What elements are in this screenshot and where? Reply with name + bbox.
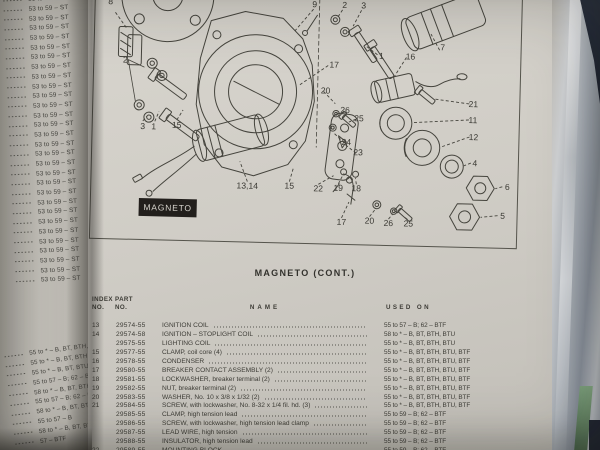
used-on-text: 53 to 59 – ST [36,178,76,187]
dot-leader [226,353,367,355]
dot-leader [6,76,26,79]
diagram-callout-number: 13,14 [236,180,258,191]
plastic-sleeve-edge [552,0,600,450]
diagram-callout-number: 26 [383,218,393,228]
diagram-callout-number: 11 [468,115,477,125]
diagram-callout-number: 25 [403,218,413,228]
dot-leader [7,96,27,99]
cell-name: LIGHTING COIL [158,340,372,347]
used-on-text: 53 to 59 – ST [29,23,69,32]
dot-leader [208,362,367,364]
dot-leader [14,441,34,445]
used-on-text: 53 to 59 – ST [31,62,71,71]
used-on-text: 53 to 59 – ST [35,149,75,158]
diagram-callout-number: 3 [140,121,145,131]
part-name-text: LIGHTING COIL [162,340,210,347]
cell-part-no: 29588-55 [108,438,158,445]
dot-leader [14,260,34,263]
dot-leader [12,421,32,425]
cell-used-on: 55 to 59 – B; 62 – BTF [372,438,494,445]
diagram-callout-number: 1 [379,51,384,61]
cell-part-no: 29582-55 [108,385,158,392]
dot-leader [9,154,29,157]
used-on-text: 53 to 59 – ST [37,188,77,197]
cell-index: 15 [90,349,108,356]
cell-used-on: 55 to * – B, BT, BTH, BTU, BTF [372,376,494,383]
used-on-text: 53 to 59 – ST [36,159,76,168]
cell-part-no: 29577-55 [108,349,158,356]
cell-used-on: 55 to * – B, BT, BTH, BTU [372,340,494,347]
diagram-callout-number: 15 [284,180,294,190]
dot-leader [257,442,367,444]
table-row: 1629578-55CONDENSER55 to * – B, BT, BTH,… [90,358,494,367]
header-part-no: PART NO. [108,296,158,312]
dot-leader [10,173,30,176]
diagram-box: 89237116217202625211112242346311513,1415… [89,0,523,249]
diagram-callout-number: 23 [353,147,363,157]
used-on-text: 53 to 59 – ST [40,256,80,265]
cell-used-on: 55 to 59 – B; 62 – BTF [372,411,494,418]
diagram-callout-number: 26 [340,105,350,115]
used-on-text: 53 to 59 – ST [39,236,79,245]
used-on-text: 53 to 59 – ST [41,275,81,284]
diagram-callout-number: 20 [365,215,375,225]
cell-index: 19 [90,385,108,392]
diagram-callout-number: 19 [333,183,343,193]
cell-used-on: 58 to * – B, BT, BTH, BTU [372,331,494,338]
left-page-line: 53 to 59 – ST [15,274,81,287]
dot-leader [257,335,367,337]
used-on-text: 53 to 59 – ST [39,227,79,236]
dot-leader [10,163,30,166]
cell-name: LEAD WIRE, high tension [158,429,372,436]
diagram-callout-number: 21 [468,99,478,109]
table-row: 1729580-55BREAKER CONTACT ASSEMBLY (2)55… [90,367,494,376]
dot-leader [6,86,26,89]
diagram-callout-number: 25 [354,113,364,123]
diagram-callout-number: 7 [440,42,445,52]
dot-leader [314,406,367,408]
header-name: NAME [158,304,372,312]
cell-index: 13 [90,322,108,329]
used-on-text: 53 to 59 – ST [32,72,72,81]
dot-leader [242,433,368,435]
dot-leader [13,241,33,244]
cover-corner-dark [589,420,600,450]
table-row: 1529577-55CLAMP, coil core (4)55 to * – … [90,349,494,358]
cell-index: 21 [90,402,108,409]
used-on-text: 53 to 59 – ST [38,207,78,216]
diagram-callout-number: 24 [341,137,351,147]
parts-table-body: 1329574-55IGNITION COIL55 to 57 – B; 62 … [90,322,494,450]
cell-index: 17 [90,367,108,374]
magneto-tag-label: MAGNETO [143,202,192,213]
dot-leader [8,134,28,137]
catalog-page: 89237116217202625211112242346311513,1415… [88,0,558,450]
table-row: 2129584-55SCREW, with lockwasher, No. 8-… [90,402,494,411]
cell-name: CLAMP, coil core (4) [158,349,372,356]
used-on-text: 53 to 59 – ST [30,43,70,52]
diagram-callout-number: 2 [342,0,347,10]
dot-leader [5,67,25,70]
header-used-on: USED ON [372,304,494,312]
cell-used-on: 55 to 57 – B; 62 – BTF [372,322,494,329]
table-row: 1829581-55LOCKWASHER, breaker terminal (… [90,376,494,385]
used-on-text: 53 to 59 – ST [35,140,75,149]
dot-leader [7,115,27,118]
part-name-text: LOCKWASHER, breaker terminal (2) [162,376,270,383]
dot-leader [214,344,367,346]
diagram-callout-number: 18 [351,183,361,193]
cell-used-on: 55 to * – B, BT, BTH, BTU, BTF [372,349,494,356]
used-on-text: 53 to 59 – ST [30,33,70,42]
part-name-text: IGNITION – STOPLIGHT COIL [162,331,253,338]
cell-name: WASHER, No. 10 x 3/8 x 1/32 (2) [158,394,372,401]
dot-leader [11,183,31,186]
used-on-text: 53 to 59 – ST [34,130,74,139]
dot-leader [5,363,25,367]
used-on-text: 57 – BTF [40,435,67,445]
left-page-top-block: 53 to 59 – ST53 to 59 – ST53 to 59 – ST5… [2,0,81,286]
dot-leader [3,18,23,21]
dot-leader [3,9,23,12]
dot-leader [4,47,24,50]
cell-name: NUT, breaker terminal (2) [158,385,372,392]
cell-part-no: 29584-55 [108,402,158,409]
diagram-callout-number: 5 [500,211,505,221]
diagram-callout-number: 3 [361,0,366,10]
used-on-text: 53 to 59 – ST [38,217,78,226]
cell-used-on: 55 to * – B, BT, BTH, BTU, BTF [372,394,494,401]
table-row: 2029583-55WASHER, No. 10 x 3/8 x 1/32 (2… [90,394,494,403]
cell-used-on: 55 to 59 – B; 62 – BTF [372,429,494,436]
cell-name: IGNITION COIL [158,322,372,329]
used-on-text: 53 to 59 – ST [37,198,77,207]
cell-name: CONDENSER [158,358,372,365]
cell-index: 14 [90,331,108,338]
cell-used-on: 55 to 59 – B; 62 – BTF [372,420,494,427]
magneto-section-tag: MAGNETO [138,198,196,217]
part-name-text: SCREW, with lockwasher, high tension lea… [162,420,309,427]
dot-leader [6,373,26,377]
table-row: 29588-55INSULATOR, high tension lead55 t… [90,438,494,447]
table-row: 1929582-55NUT, breaker terminal (2)55 to… [90,385,494,394]
cell-name: SCREW, with lockwasher, high tension lea… [158,420,372,427]
dot-leader [12,212,32,215]
diagram-callout-number: 8 [108,0,113,6]
diagram-callout-number: 4 [472,158,477,168]
diagram-callout-number: 17 [336,217,346,227]
diagram-callout-number: 12 [469,132,479,142]
header-index-no: INDEX NO. [90,296,108,312]
cell-name: SCREW, with lockwasher, No. 8-32 x 1/4 f… [158,402,372,409]
diagram-callout-number: 16 [406,51,416,61]
part-name-text: INSULATOR, high tension lead [162,438,253,445]
dot-leader [8,125,28,128]
dot-leader [14,270,34,273]
part-name-text: LEAD WIRE, high tension [162,429,238,436]
table-row: 1329574-55IGNITION COIL55 to 57 – B; 62 … [90,322,494,331]
table-row: 29585-55CLAMP, high tension lead55 to 59… [90,411,494,420]
parts-table-header: INDEX NO. PART NO. NAME USED ON [90,296,494,312]
diagram-callout-number: 1 [151,121,156,131]
cell-name: IGNITION – STOPLIGHT COIL [158,331,372,338]
dot-leader [274,380,367,382]
book-photo: 53 to 59 – ST53 to 59 – ST53 to 59 – ST5… [0,0,600,450]
cell-name: INSULATOR, high tension lead [158,438,372,445]
dot-leader [12,222,32,225]
cell-index: 18 [90,376,108,383]
cell-part-no: 29578-55 [108,358,158,365]
cell-index: 20 [90,394,108,401]
part-name-text: CONDENSER [162,358,204,365]
cell-part-no: 29574-55 [108,322,158,329]
cell-part-no: 29581-55 [108,376,158,383]
dot-leader [3,28,23,31]
cell-used-on: 55 to * – B, BT, BTH, BTU, BTF [372,358,494,365]
dot-leader [13,431,33,435]
cell-used-on: 55 to * – B, BT, BTH, BTU, BTF [372,367,494,374]
used-on-text: 53 to 59 – ST [33,110,73,119]
dot-leader [8,392,28,396]
diagram-callout-number: 2 [123,55,128,65]
cell-index: 16 [90,358,108,365]
used-on-text: 53 to 59 – ST [33,101,73,110]
diagram-callout-number: 20 [321,85,331,95]
dot-leader [11,192,31,195]
dot-leader [2,0,22,2]
diagram-callout-number: 22 [313,183,323,193]
cell-used-on: 55 to * – B, BT, BTH, BTU, BTF [372,402,494,409]
diagram-callout-number: 9 [312,0,317,9]
dot-leader [3,353,23,357]
cell-part-no: 29575-55 [108,340,158,347]
dot-leader [213,326,367,328]
used-on-text: 53 to 59 – ST [29,14,69,23]
dot-leader [264,398,367,400]
table-row: 1429574-58IGNITION – STOPLIGHT COIL58 to… [90,331,494,340]
dot-leader [313,424,367,426]
dot-leader [241,415,367,417]
used-on-text: 53 to 59 – ST [34,120,74,129]
part-name-text: NUT, breaker terminal (2) [162,385,236,392]
part-name-text: IGNITION COIL [162,322,209,329]
used-on-text: 53 to 59 – ST [31,52,71,61]
cell-used-on: 55 to * – B, BT, BTH, BTU, BTF [372,385,494,392]
part-name-text: SCREW, with lockwasher, No. 8-32 x 1/4 f… [162,402,310,409]
part-name-text: WASHER, No. 10 x 3/8 x 1/32 (2) [162,394,260,401]
table-row: 29586-55SCREW, with lockwasher, high ten… [90,420,494,429]
dot-leader [11,202,31,205]
table-row: 29575-55LIGHTING COIL55 to * – B, BT, BT… [90,340,494,349]
dot-leader [9,402,29,406]
dot-leader [11,412,31,416]
diagram-callout-number: 15 [172,120,182,130]
used-on-text: 53 to 59 – ST [28,4,68,13]
cell-part-no: 29587-55 [108,429,158,436]
part-name-text: CLAMP, high tension lead [162,411,237,418]
used-on-text: 53 to 59 – ST [32,91,72,100]
dot-leader [13,231,33,234]
dot-leader [14,251,34,254]
used-on-text: 53 to 59 – ST [36,169,76,178]
cell-name: BREAKER CONTACT ASSEMBLY (2) [158,367,372,374]
part-name-text: BREAKER CONTACT ASSEMBLY (2) [162,367,273,374]
table-row: 29587-55LEAD WIRE, high tension55 to 59 … [90,429,494,438]
cell-part-no: 29580-55 [108,367,158,374]
diagram-callout-number: 6 [505,182,510,192]
dot-leader [4,38,24,41]
dot-leader [277,371,367,373]
page-title: MAGNETO (CONT.) [92,268,518,278]
left-page-edge: 53 to 59 – ST53 to 59 – ST53 to 59 – ST5… [0,0,98,450]
dot-leader [7,105,27,108]
cell-part-no: 29574-58 [108,331,158,338]
diagram-callout-number: 17 [329,60,339,70]
cell-part-no: 29583-55 [108,394,158,401]
part-name-text: CLAMP, coil core (4) [162,349,222,356]
dot-leader [15,280,35,283]
dot-leader [9,144,29,147]
used-on-text: 53 to 59 – ST [39,246,79,255]
dot-leader [7,383,27,387]
dot-leader [5,57,25,60]
used-on-text: 53 to 59 – ST [32,81,72,90]
cell-part-no: 29585-55 [108,411,158,418]
dot-leader [240,389,367,391]
cell-name: CLAMP, high tension lead [158,411,372,418]
used-on-text: 53 to 59 – ST [40,265,80,274]
cell-name: LOCKWASHER, breaker terminal (2) [158,376,372,383]
cell-part-no: 29586-55 [108,420,158,427]
